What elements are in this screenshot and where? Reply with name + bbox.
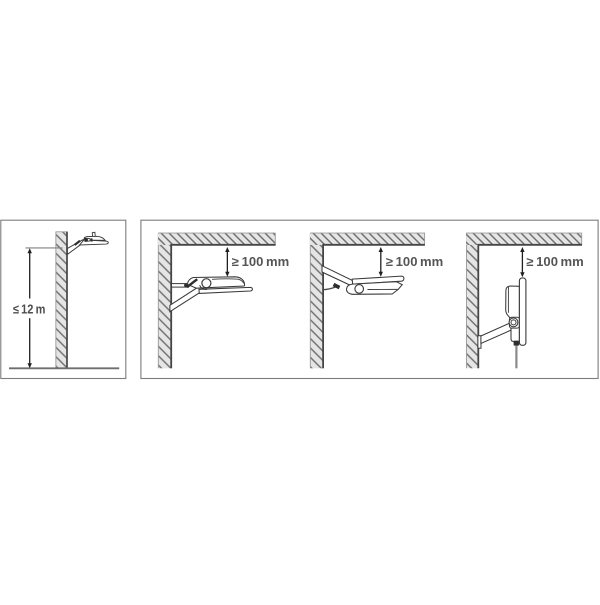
svg-text:≤ 12 m: ≤ 12 m bbox=[13, 302, 46, 317]
svg-text:≥ 100 mm: ≥ 100 mm bbox=[526, 255, 583, 269]
svg-text:≥ 100 mm: ≥ 100 mm bbox=[232, 255, 289, 269]
svg-text:≥ 100 mm: ≥ 100 mm bbox=[386, 255, 443, 269]
